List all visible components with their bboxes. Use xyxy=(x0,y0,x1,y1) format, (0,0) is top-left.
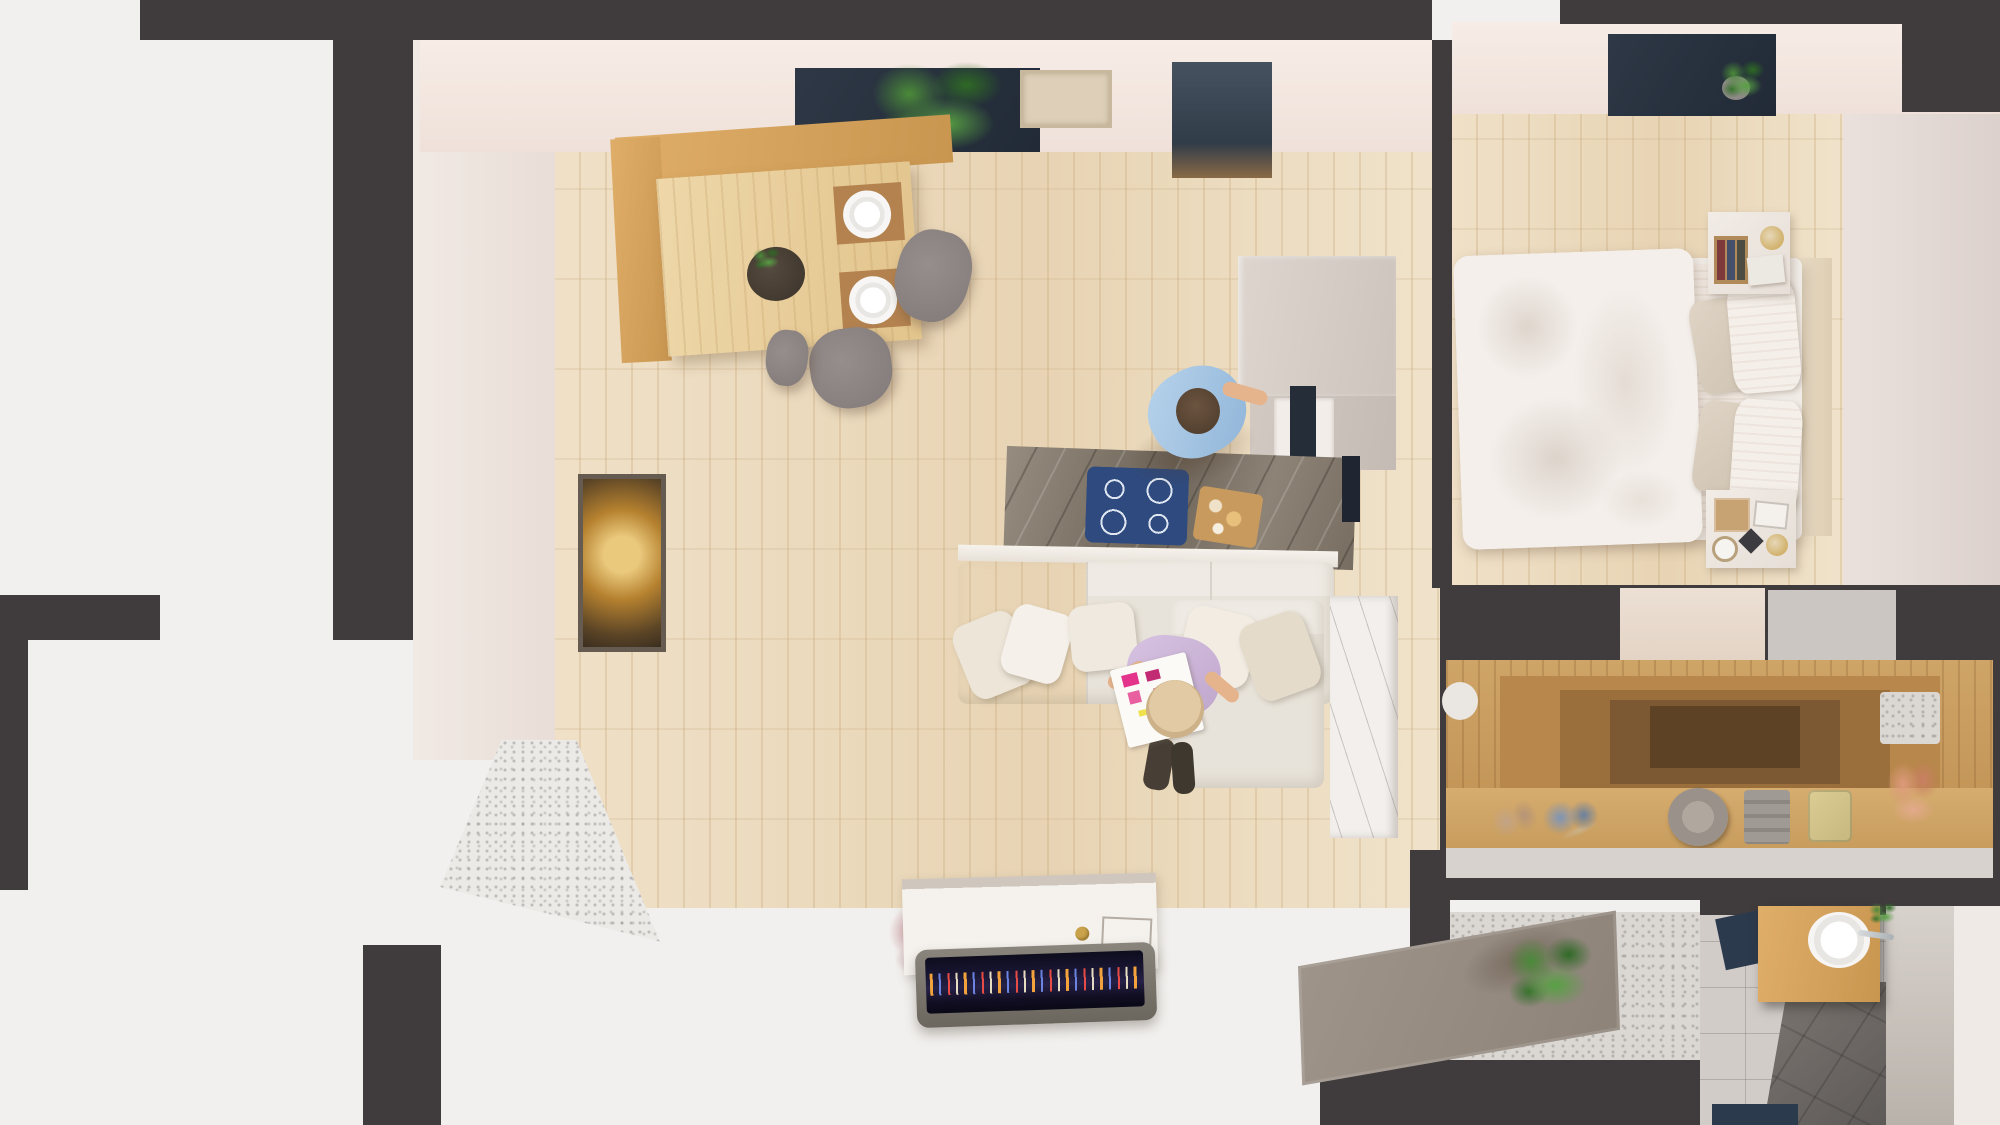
cutting-board xyxy=(1192,485,1264,548)
vanity-plant xyxy=(1866,900,1900,926)
white-pillow xyxy=(1725,277,1803,395)
yellow-bag xyxy=(1808,790,1852,842)
entry-door-niche xyxy=(1172,62,1272,178)
bed-duvet xyxy=(1453,248,1703,550)
framed-city-art xyxy=(578,474,666,652)
person-cooking-head xyxy=(1176,388,1220,434)
mirror-panel xyxy=(1886,906,1956,1125)
tv-screen xyxy=(925,950,1145,1014)
wood-letter-blocks xyxy=(1714,498,1750,532)
bedroom-window-succulent xyxy=(1716,56,1770,102)
hat-box xyxy=(1442,682,1478,720)
nightstand-bottom xyxy=(1706,490,1796,568)
wardrobe-inner-dark xyxy=(1650,706,1800,768)
entry-plant xyxy=(1498,928,1602,1016)
closet-cabinet-top xyxy=(1768,590,1896,668)
tall-cabinet-branch-decal xyxy=(1330,596,1398,838)
bedroom-right-wall xyxy=(1843,108,2000,588)
folded-clothes xyxy=(1744,790,1790,844)
sideboard-knob xyxy=(1075,926,1089,940)
person-reading-leg xyxy=(1170,741,1196,794)
coral-dried-flowers xyxy=(1880,752,1946,832)
table-lamp xyxy=(1766,534,1788,556)
dining-table xyxy=(656,161,922,356)
bathroom-right-wall xyxy=(1954,906,2000,1125)
wall-left-edge-v xyxy=(0,595,28,890)
book-spine xyxy=(1727,240,1735,280)
book-on-top xyxy=(1747,254,1786,286)
decor-diamond xyxy=(1738,528,1763,553)
hat xyxy=(1668,788,1728,846)
apartment-render xyxy=(0,0,2000,1125)
gray-towel xyxy=(1880,692,1940,744)
television xyxy=(915,942,1158,1028)
book-spine xyxy=(1717,240,1725,280)
photo-frames xyxy=(1753,500,1790,529)
book-spine xyxy=(1737,240,1745,280)
table-lamp xyxy=(1760,226,1784,250)
clock xyxy=(1712,536,1738,562)
kitchen-tall-cabinet xyxy=(1238,256,1396,398)
wall-top-right-block xyxy=(1902,0,2000,112)
wall-left-stub xyxy=(363,945,441,1125)
round-sink xyxy=(1808,912,1870,968)
counter-dark-strip xyxy=(1342,456,1360,522)
wall-bedroom-divider xyxy=(1432,40,1452,588)
bath-mat xyxy=(1712,1104,1798,1125)
wall-left-column xyxy=(333,0,413,640)
person-reading-head xyxy=(1146,680,1204,738)
wall-picture-frame xyxy=(1020,70,1112,128)
bathroom-vanity xyxy=(1758,906,1880,1002)
tv-skyline xyxy=(930,966,1141,995)
nightstand-top xyxy=(1708,212,1790,294)
hallway-floor-strip xyxy=(1446,848,1993,878)
